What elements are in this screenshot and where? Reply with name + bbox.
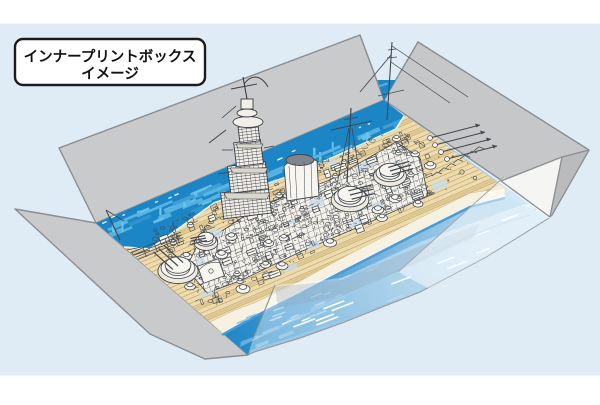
svg-text:イメージ: イメージ — [81, 67, 139, 83]
svg-text:インナープリントボックス: インナープリントボックス — [24, 49, 197, 66]
